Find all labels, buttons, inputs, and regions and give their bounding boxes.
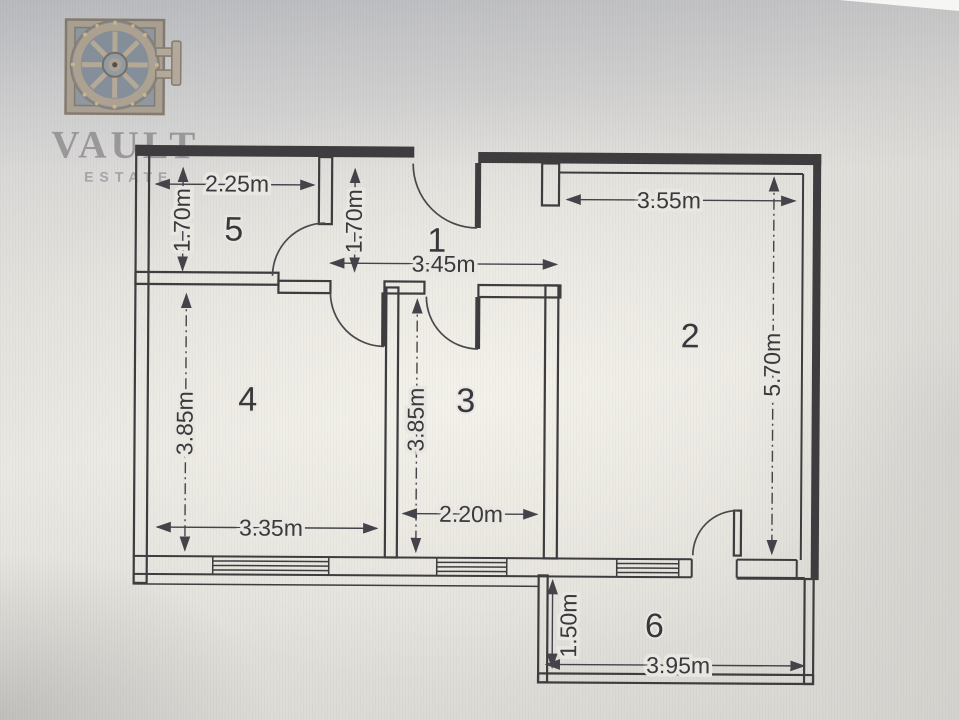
room-4-label: 4 [238,381,257,419]
balcony-door-arc [693,510,738,555]
entrance-door-arc [413,164,477,228]
dimension-label-room1-3.45m: 3.45m [412,251,476,277]
dimension-label-room2-3.55m: 3.55m [637,187,701,213]
floor-plan-drawing: 1234562.25m1.70m1.70m3.45m3.55m5.70m3.85… [0,0,959,720]
room-6-label: 6 [645,607,664,645]
dimension-label-room6-1.50m: 1.50m [555,594,581,658]
wall-stub [542,163,559,205]
dimension-label-room3-2.20m: 2.20m [439,501,503,527]
balcony-right-wall [804,579,814,684]
photo-content: VAULT ESTATE [0,0,959,720]
entrance-door-leaf [475,163,481,228]
floor-plan-photo: VAULT ESTATE [0,0,959,720]
labels-group: 1234562.25m1.70m1.70m3.45m3.55m5.70m3.85… [166,170,786,679]
room5-bottom-wall [135,272,278,285]
room4-door-arc [330,292,384,346]
dimension-label-room3-3.85m: 3.85m [402,388,428,452]
facade-line [133,584,539,586]
dimension-label-room4-3.35m: 3.35m [239,515,303,541]
window-room3 [437,558,507,576]
dimension-label-room4-3.85m: 3.85m [171,391,197,455]
room3-door-arc [426,297,478,349]
left-outer-wall [134,146,150,583]
dimension-label-room2-5.70m: 5.70m [759,333,785,397]
room4-room3-wall [385,287,399,557]
window-room2 [617,559,679,577]
window-room4 [213,556,329,575]
dimension-label-room6-3.95m: 3.95m [646,652,710,678]
dimension-label-room1-1.70m: 1.70m [341,189,367,253]
room-3-label: 3 [456,382,475,420]
windows [133,556,679,587]
dim-line-1.50 [552,580,553,667]
balcony-door-leaf [734,511,741,556]
balcony-left-wall [538,575,548,682]
room3-top-wall [478,285,560,298]
room3-room2-wall [544,285,559,558]
dimension-label-room5-2.25m: 2.25m [205,170,269,196]
room5-door-arc [273,223,325,276]
room5-right-wall [319,157,332,224]
room-5-label: 5 [224,210,243,248]
dimension-label-room5-1.70m: 1.70m [169,188,195,252]
room-2-label: 2 [681,317,700,355]
room3-door-leaf [475,297,480,349]
